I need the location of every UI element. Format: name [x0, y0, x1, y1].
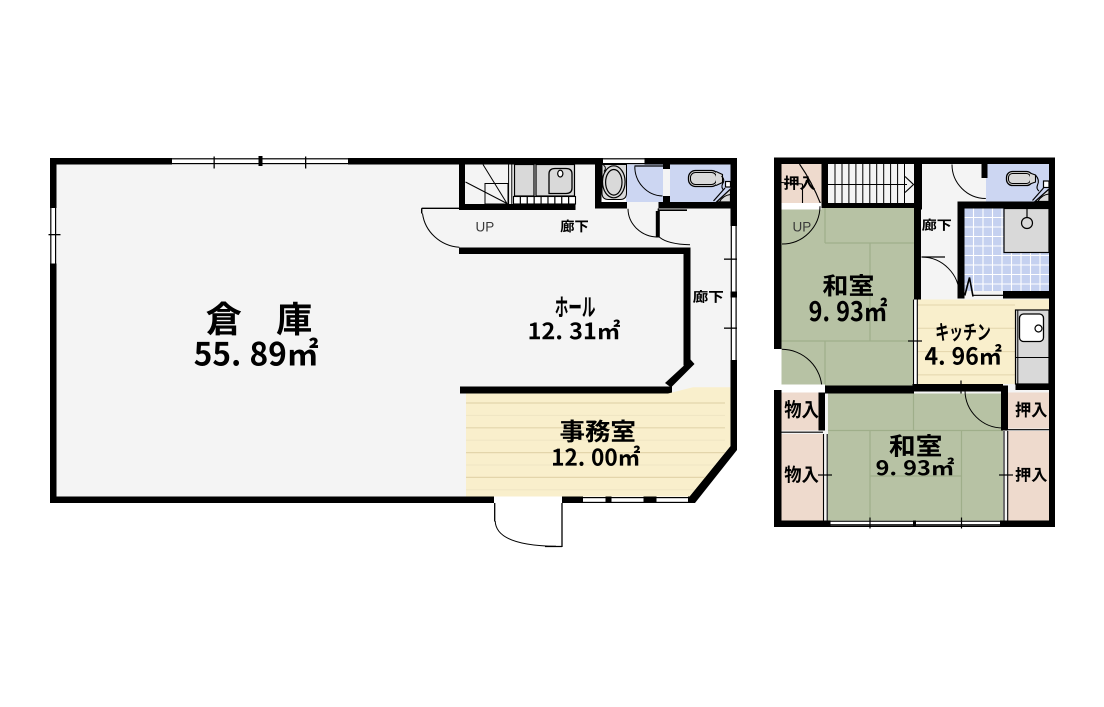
svg-text:UP: UP — [793, 220, 812, 235]
svg-text:UP: UP — [476, 220, 495, 235]
